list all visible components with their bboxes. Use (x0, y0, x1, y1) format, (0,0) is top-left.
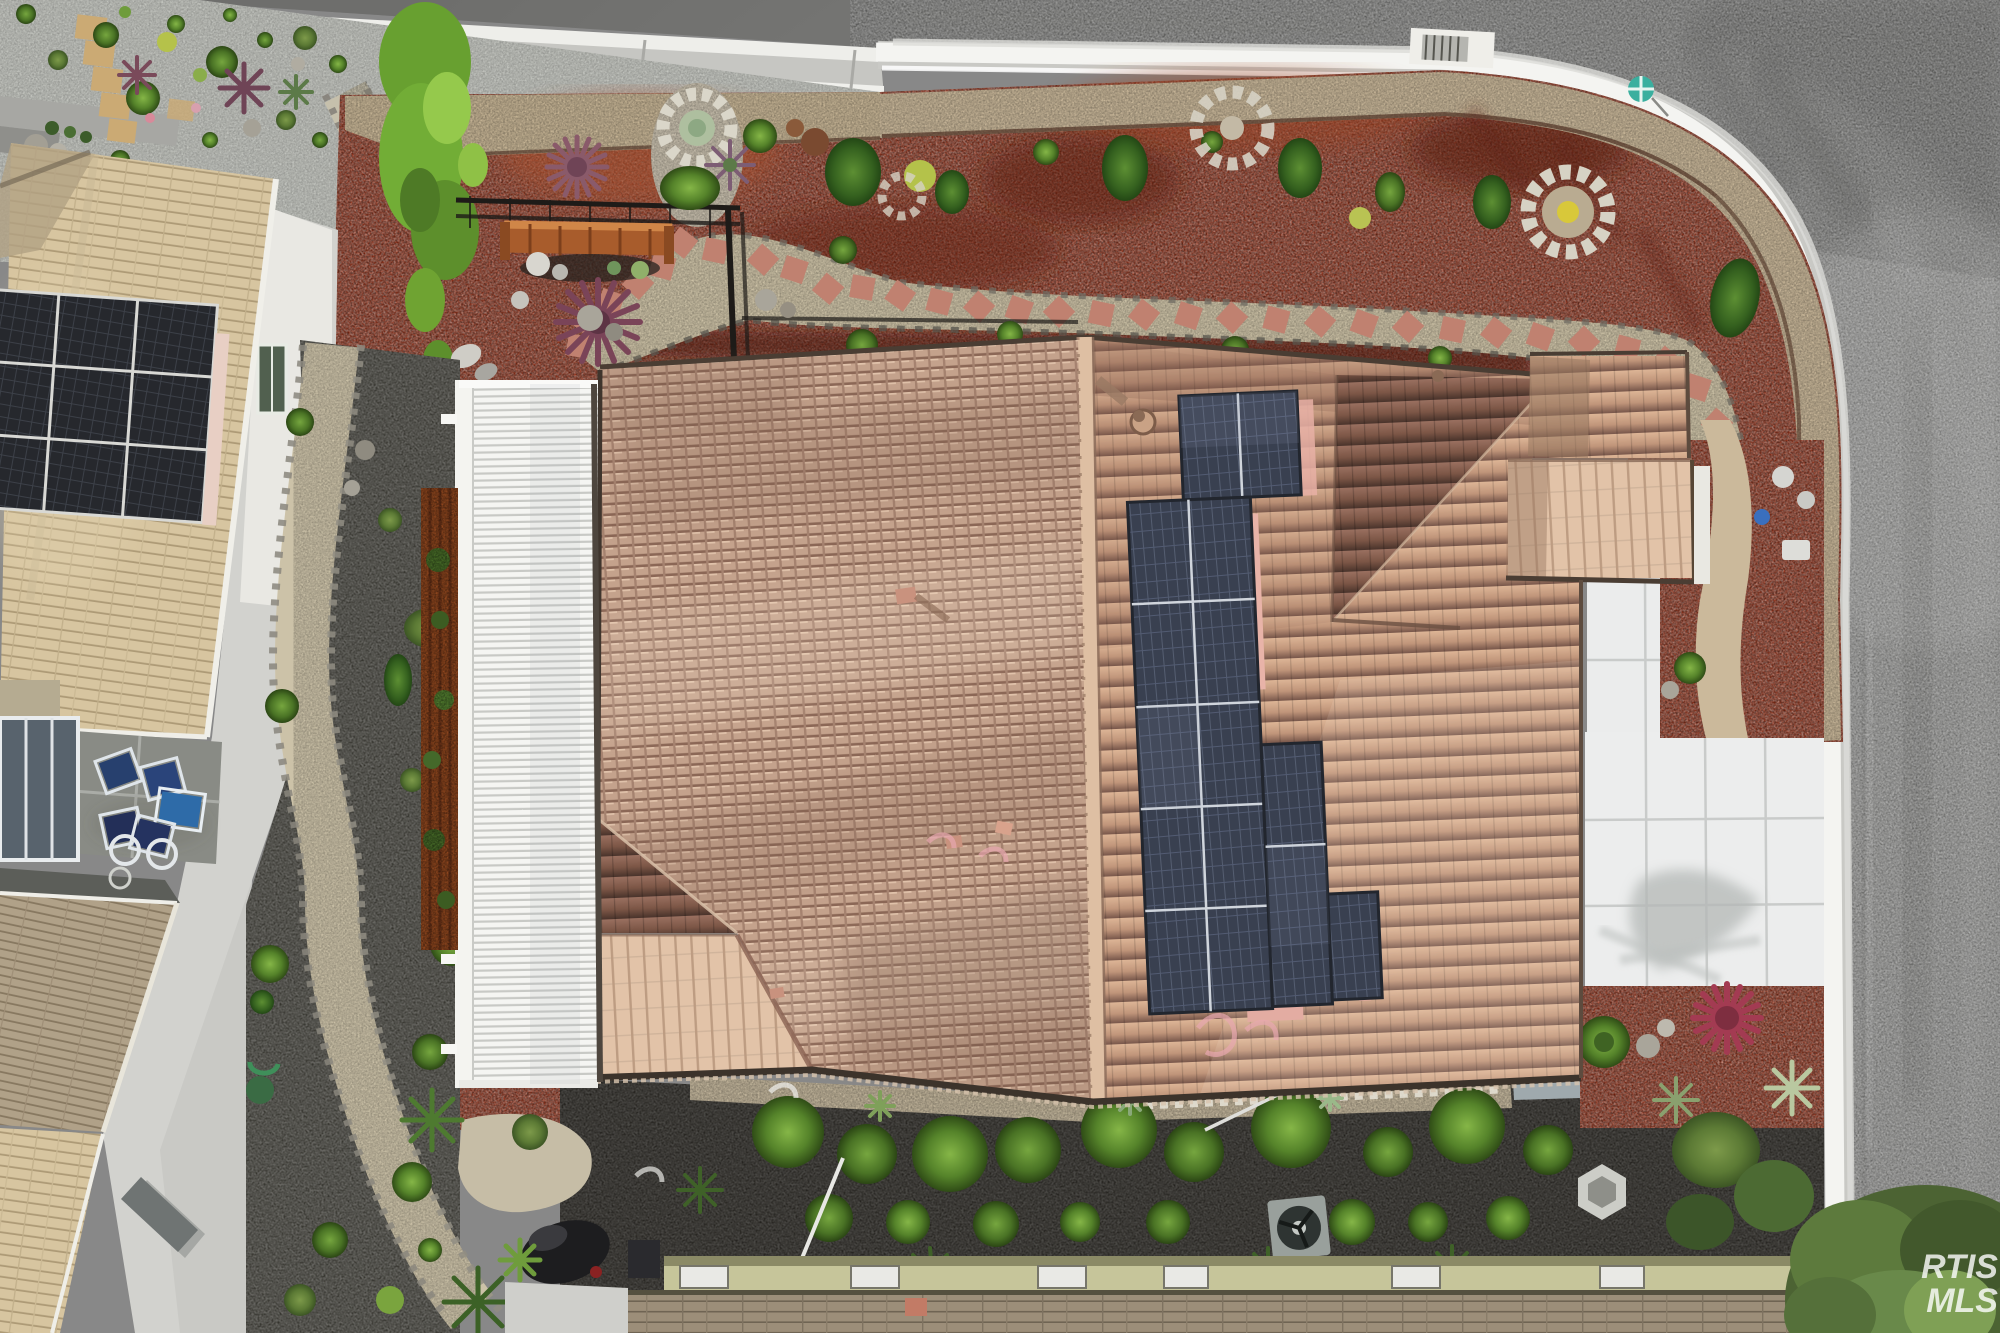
svg-text:RTIS: RTIS (1921, 1248, 1998, 1286)
svg-text:MLS: MLS (1926, 1282, 1998, 1320)
